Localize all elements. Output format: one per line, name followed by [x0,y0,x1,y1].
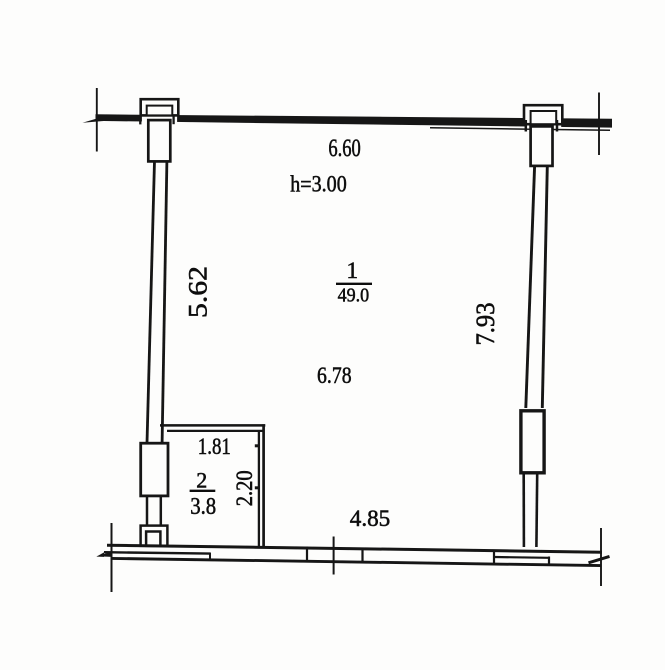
svg-text:2.20: 2.20 [232,470,258,506]
svg-text:3.8: 3.8 [190,493,216,520]
svg-text:6.60: 6.60 [328,135,361,162]
svg-text:4.85: 4.85 [350,506,391,531]
svg-text:6.78: 6.78 [317,363,352,388]
svg-text:5.62: 5.62 [184,266,213,318]
svg-text:1.81: 1.81 [198,434,231,460]
svg-text:49.0: 49.0 [338,284,370,306]
svg-text:h=3.00: h=3.00 [290,172,347,197]
svg-text:7.93: 7.93 [471,303,500,346]
svg-text:2: 2 [196,468,207,493]
svg-text:1: 1 [346,258,358,284]
